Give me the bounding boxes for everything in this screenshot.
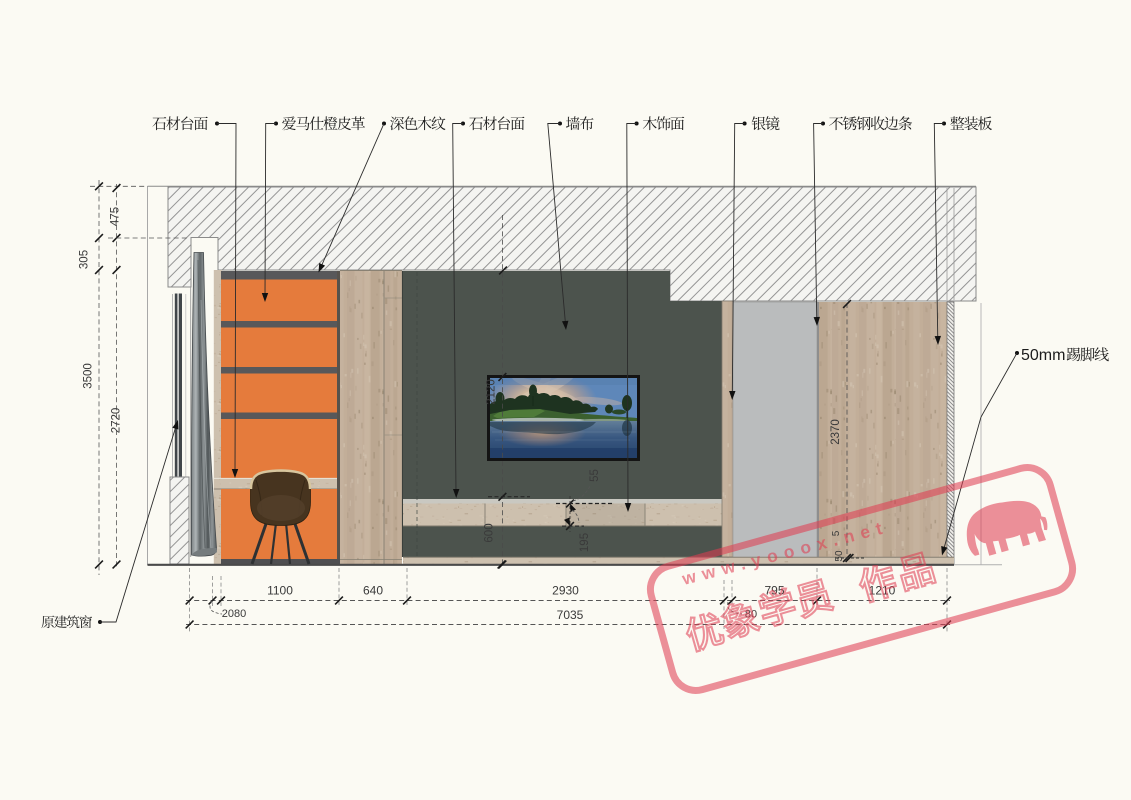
svg-text:2120: 2120 (486, 379, 498, 405)
svg-text:1100: 1100 (267, 584, 293, 598)
svg-text:640: 640 (363, 584, 383, 598)
svg-text:600: 600 (484, 523, 496, 542)
svg-text:2370: 2370 (830, 419, 842, 445)
svg-text:50: 50 (834, 550, 845, 562)
svg-text:305: 305 (79, 250, 91, 269)
svg-text:475: 475 (110, 207, 122, 226)
svg-text:2930: 2930 (552, 584, 579, 598)
svg-text:3500: 3500 (83, 363, 95, 389)
svg-text:2720: 2720 (111, 408, 123, 434)
svg-text:7035: 7035 (557, 608, 584, 622)
svg-text:2080: 2080 (222, 608, 246, 620)
svg-text:50mm: 50mm (1021, 347, 1065, 364)
svg-text:195: 195 (579, 533, 591, 552)
svg-text:55: 55 (589, 469, 601, 482)
